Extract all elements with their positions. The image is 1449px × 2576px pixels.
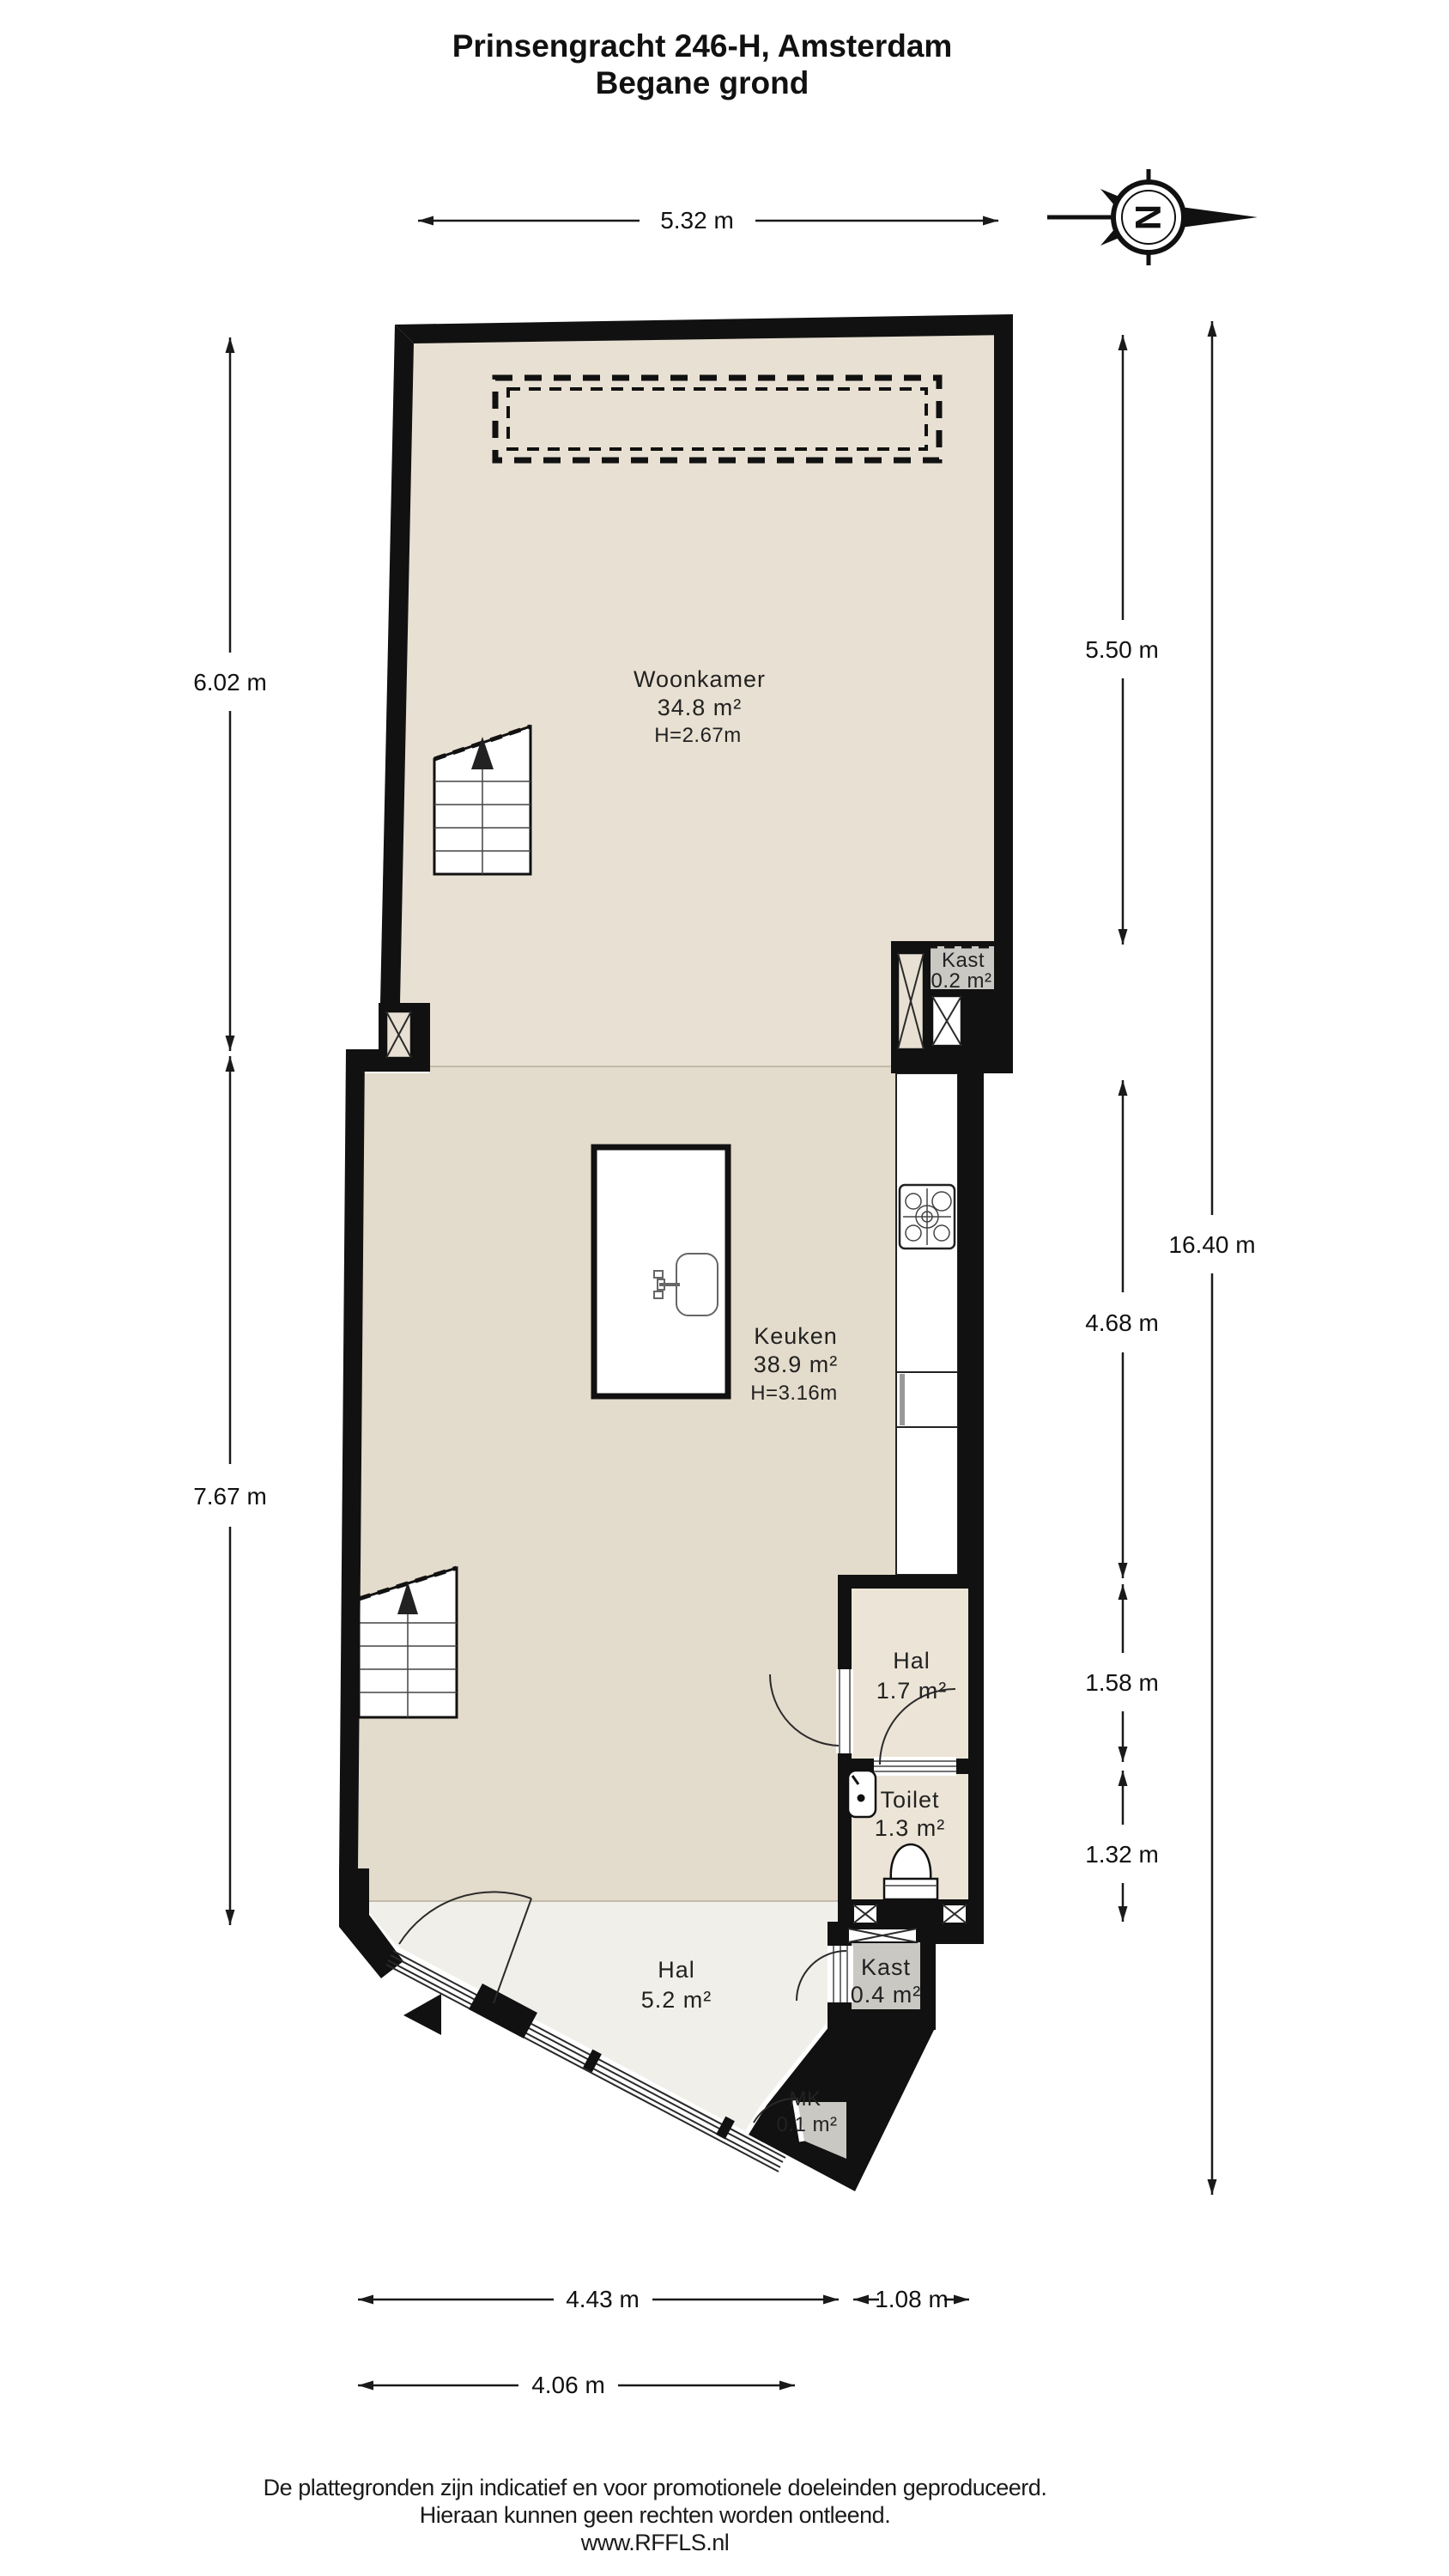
label-toilet-area: 1.3 m² — [875, 1815, 946, 1841]
shaft-symbol-left — [386, 1012, 411, 1058]
entrance-arrow-icon — [403, 1994, 441, 2035]
dim-top: 5.32 m — [418, 207, 998, 234]
label-kast-boven: Kast — [942, 949, 985, 972]
north-compass-icon: N — [1047, 169, 1258, 265]
dim-bottom-main: 4.43 m — [358, 2286, 839, 2312]
label-keuken-area: 38.9 m² — [754, 1352, 839, 1377]
label-hal-entree-area: 5.2 m² — [641, 1987, 712, 2013]
label-toilet: Toilet — [880, 1787, 939, 1813]
dim-right-hal: 1.58 m — [1085, 1584, 1159, 1762]
dim-right-upper-label: 5.50 m — [1085, 636, 1159, 663]
dim-right-toilet-label: 1.32 m — [1085, 1841, 1159, 1868]
label-hal-entree: Hal — [658, 1957, 695, 1983]
wall-right-kitchen — [958, 1072, 984, 1587]
label-kast-onder-area: 0.4 m² — [851, 1982, 922, 2008]
sink-basin — [676, 1254, 718, 1315]
dim-bottom-side: 1.08 m — [853, 2286, 969, 2312]
page-subtitle: Begane grond — [596, 65, 809, 100]
dim-right-total-label: 16.40 m — [1168, 1231, 1255, 1258]
dim-left-upper-label: 6.02 m — [193, 669, 267, 696]
dim-right-hal-label: 1.58 m — [1085, 1669, 1159, 1696]
label-kast-onder: Kast — [861, 1954, 911, 1980]
label-woonkamer: Woonkamer — [634, 666, 766, 692]
stove-icon — [900, 1185, 955, 1249]
dim-right-upper: 5.50 m — [1085, 335, 1159, 945]
label-keuken: Keuken — [754, 1323, 838, 1349]
toilet-sink-icon — [848, 1771, 876, 1817]
cabinet-box — [896, 1427, 958, 1575]
dim-right-total: 16.40 m — [1168, 321, 1255, 2195]
dim-bottom-inner: 4.06 m — [358, 2372, 795, 2398]
dim-right-toilet: 1.32 m — [1085, 1771, 1159, 1922]
dim-top-label: 5.32 m — [660, 207, 734, 234]
footer-disclaimer-line1: De plattegronden zijn indicatief en voor… — [264, 2475, 1047, 2500]
label-hal-binnen-area: 1.7 m² — [876, 1678, 948, 1704]
floor-hal-binnen — [852, 1589, 968, 1759]
footer-website: www.RFFLS.nl — [580, 2530, 730, 2555]
shaft-symbol-kast-beige — [898, 953, 924, 1049]
label-hal-binnen: Hal — [893, 1648, 931, 1674]
floorplan-page: Prinsengracht 246-H, Amsterdam Begane gr… — [0, 0, 1449, 2576]
shaft-symbol-kast-white — [932, 996, 961, 1046]
dim-right-kitchen-label: 4.68 m — [1085, 1309, 1159, 1336]
appliance-box — [896, 1372, 958, 1427]
kitchen-island — [594, 1147, 728, 1396]
dim-left-upper: 6.02 m — [193, 337, 267, 1051]
dim-bottom-inner-label: 4.06 m — [531, 2372, 605, 2398]
door-jamb — [836, 1669, 853, 1753]
footer-disclaimer-line2: Hieraan kunnen geen rechten worden ontle… — [420, 2502, 890, 2528]
dim-right-kitchen: 4.68 m — [1085, 1080, 1159, 1578]
label-meterkast: MK — [790, 2087, 822, 2111]
floorplan-drawing: Prinsengracht 246-H, Amsterdam Begane gr… — [0, 0, 1449, 2576]
compass-letter: N — [1128, 204, 1168, 230]
label-kast-boven-area: 0.2 m² — [931, 969, 991, 993]
label-woonkamer-height: H=2.67m — [654, 724, 742, 747]
label-woonkamer-area: 34.8 m² — [658, 695, 743, 720]
dim-left-lower: 7.67 m — [193, 1056, 267, 1925]
dim-bottom-side-label: 1.08 m — [875, 2286, 949, 2312]
label-keuken-height: H=3.16m — [750, 1382, 838, 1405]
dim-bottom-main-label: 4.43 m — [566, 2286, 640, 2312]
kitchen-counter — [896, 1073, 958, 1575]
label-meterkast-area: 0.1 m² — [776, 2113, 837, 2136]
page-title: Prinsengracht 246-H, Amsterdam — [452, 28, 953, 64]
dim-left-lower-label: 7.67 m — [193, 1483, 267, 1510]
